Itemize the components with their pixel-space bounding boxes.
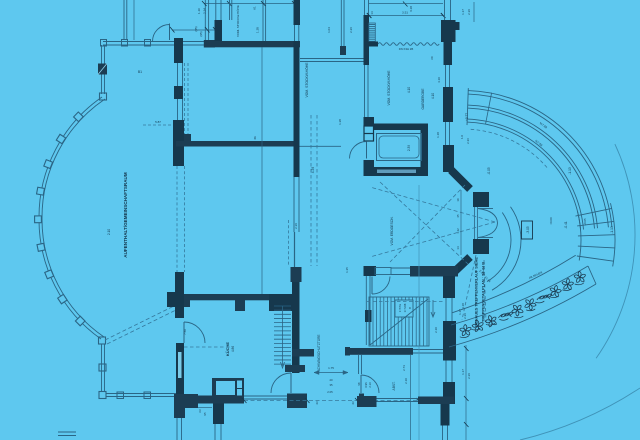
svg-text:7.50: 7.50: [183, 329, 187, 335]
svg-text:63: 63: [198, 409, 202, 413]
svg-text:2.39: 2.39: [407, 145, 411, 151]
svg-text:1.17: 1.17: [461, 369, 465, 375]
svg-text:VOM. STOCKW.HÖHE: VOM. STOCKW.HÖHE: [387, 70, 391, 106]
svg-text:2.36: 2.36: [466, 138, 470, 144]
svg-text:69: 69: [430, 56, 434, 60]
svg-text:-1.13: -1.13: [610, 226, 614, 233]
svg-text:17.5/28: 17.5/28: [403, 303, 407, 312]
svg-text:GENAUES TREPPENVERLAUF SIEHE: GENAUES TREPPENVERLAUF SIEHE: [474, 257, 479, 327]
svg-text:DN K3H 2B: DN K3H 2B: [399, 47, 414, 51]
svg-text:61: 61: [253, 6, 257, 10]
svg-text:B: B: [408, 307, 412, 309]
svg-text:ABST.: ABST.: [392, 381, 396, 390]
svg-text:3.18: 3.18: [409, 6, 413, 12]
svg-text:1.04: 1.04: [327, 27, 331, 33]
svg-text:43: 43: [315, 401, 319, 405]
svg-text:2.36: 2.36: [467, 373, 471, 379]
svg-text:1.18: 1.18: [436, 132, 440, 138]
svg-text:19: 19: [456, 198, 460, 202]
svg-text:4.10: 4.10: [437, 77, 441, 83]
svg-text:4.39: 4.39: [311, 167, 315, 174]
svg-text:1.17: 1.17: [458, 309, 462, 315]
svg-text:2.34: 2.34: [203, 8, 207, 14]
svg-text:3.51: 3.51: [402, 11, 408, 15]
svg-text:VOM. STOCKW.HÖHE: VOM. STOCKW.HÖHE: [236, 5, 240, 37]
svg-text:-0.05: -0.05: [487, 167, 491, 174]
svg-text:-0.41: -0.41: [564, 221, 568, 228]
svg-text:2.05: 2.05: [327, 390, 333, 394]
svg-text:2.10: 2.10: [368, 382, 372, 388]
svg-text:2.10: 2.10: [434, 327, 438, 333]
svg-text:1.75: 1.75: [328, 366, 334, 370]
svg-text:TREPPENDETAILPLAN : 94-44 B: TREPPENDETAILPLAN : 94-44 B: [481, 262, 486, 322]
svg-text:1.35: 1.35: [345, 267, 349, 273]
svg-text:35: 35: [329, 383, 333, 387]
svg-text:-3.05: -3.05: [526, 226, 530, 233]
svg-text:4.10: 4.10: [431, 93, 435, 99]
svg-text:36: 36: [253, 136, 257, 140]
svg-text:1.38: 1.38: [338, 119, 342, 125]
svg-text:SCHWINGSCHUTZTÜRE: SCHWINGSCHUTZTÜRE: [317, 334, 321, 371]
svg-text:4.10: 4.10: [407, 87, 411, 93]
svg-text:2.10: 2.10: [107, 229, 111, 235]
svg-text:GARDEROBE: GARDEROBE: [421, 88, 425, 110]
svg-text:43: 43: [351, 401, 355, 405]
svg-text:2.26: 2.26: [349, 27, 353, 33]
svg-text:+0.77: +0.77: [465, 113, 469, 121]
svg-text:1.0: 1.0: [460, 135, 464, 139]
svg-text:17STG: 17STG: [398, 304, 402, 312]
svg-text:1.32: 1.32: [456, 228, 460, 234]
svg-text:-1.13: -1.13: [568, 167, 572, 174]
svg-text:2.10: 2.10: [404, 378, 408, 384]
svg-text:2.73: 2.73: [402, 365, 406, 371]
svg-text:35: 35: [456, 214, 460, 218]
svg-text:14: 14: [456, 246, 460, 250]
svg-text:5.87: 5.87: [155, 120, 161, 124]
svg-text:VOM. ERDGESCH.: VOM. ERDGESCH.: [390, 216, 394, 245]
svg-text:2.36: 2.36: [467, 9, 471, 15]
svg-text:95: 95: [203, 412, 207, 416]
svg-text:±0.00: ±0.00: [549, 217, 553, 225]
svg-text:1.17: 1.17: [461, 9, 465, 15]
svg-text:20: 20: [329, 378, 333, 382]
svg-text:2.36: 2.36: [294, 223, 298, 229]
svg-text:(95): (95): [199, 31, 203, 36]
svg-text:B1: B1: [138, 70, 142, 74]
svg-text:+0.05: +0.05: [583, 218, 587, 226]
svg-text:1.10: 1.10: [197, 8, 201, 14]
svg-text:14: 14: [370, 11, 374, 15]
svg-text:(85): (85): [194, 26, 198, 31]
svg-text:1.35: 1.35: [256, 27, 260, 33]
svg-text:AUFENTHALT/GEMEINSCHAFTSRAUM: AUFENTHALT/GEMEINSCHAFTSRAUM: [123, 172, 128, 258]
svg-text:VOM. STOCKW.HÖHE: VOM. STOCKW.HÖHE: [305, 62, 309, 98]
svg-text:KÜCHE: KÜCHE: [225, 342, 230, 357]
svg-text:2.36: 2.36: [463, 313, 467, 319]
svg-text:4.86: 4.86: [231, 346, 235, 352]
svg-text:0.95: 0.95: [364, 382, 368, 388]
